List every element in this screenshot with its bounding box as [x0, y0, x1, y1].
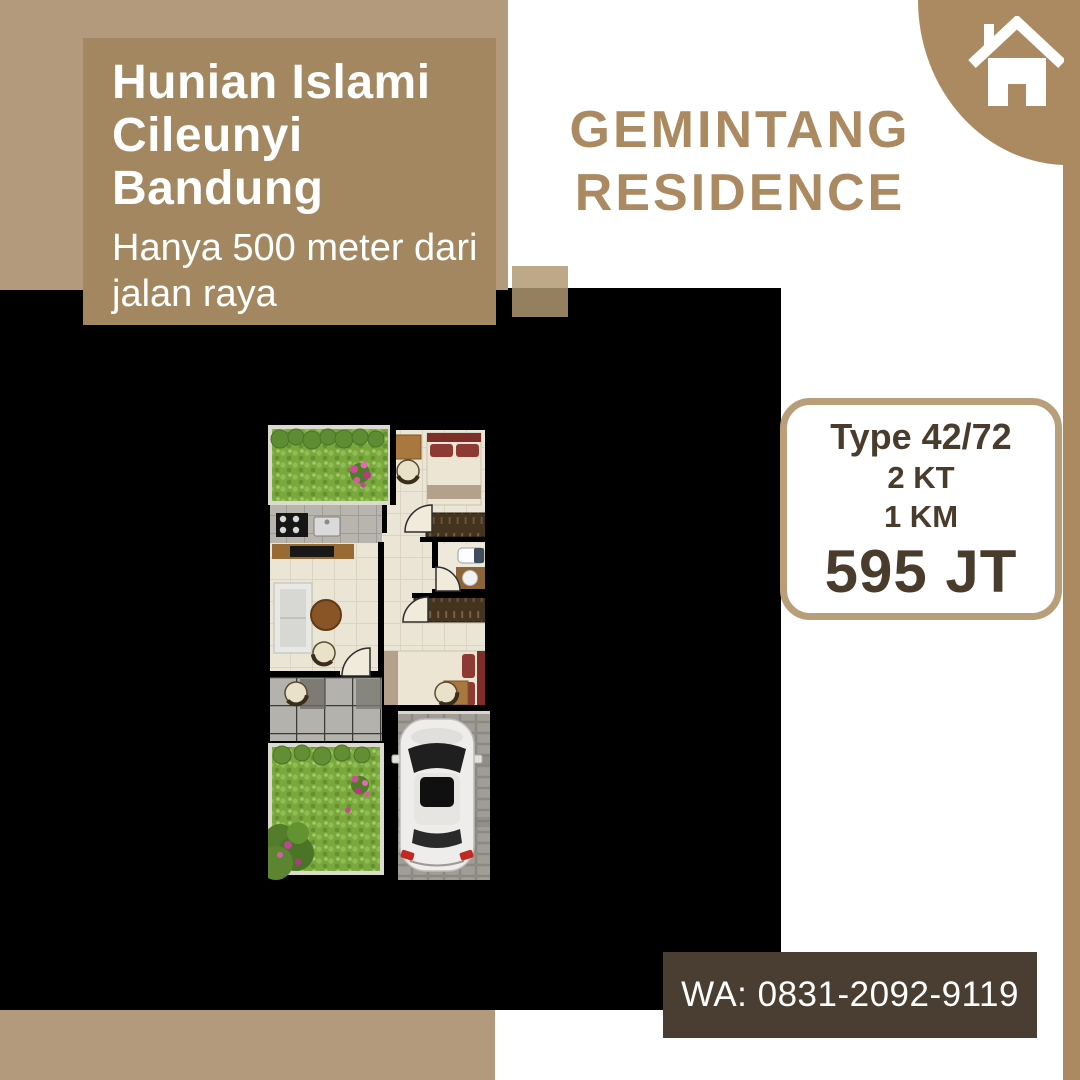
spec-bathrooms: 1 KM: [884, 497, 958, 536]
terrace: [270, 677, 382, 741]
headline-box: Hunian Islami Cileunyi Bandung Hanya 500…: [83, 38, 496, 325]
house-icon: [968, 16, 1064, 108]
car-graphic: [392, 719, 482, 871]
photo-panel: [0, 288, 781, 1010]
poster-canvas: Hunian Islami Cileunyi Bandung Hanya 500…: [0, 0, 1080, 1080]
spec-card: Type 42/72 2 KT 1 KM 595 JT: [780, 398, 1062, 620]
title-line-1: Hunian Islami: [112, 56, 496, 109]
page-title: Hunian Islami Cileunyi Bandung: [112, 56, 496, 215]
brand-line-1: GEMINTANG: [535, 99, 945, 162]
subtitle-line-1: Hanya 500 meter dari: [112, 225, 496, 271]
brand-title: GEMINTANG RESIDENCE: [535, 99, 945, 225]
bottom-bar: [0, 1010, 495, 1080]
front-garden: [268, 745, 382, 880]
whatsapp-cta[interactable]: WA: 0831-2092-9119: [663, 952, 1037, 1038]
backyard-garden: [270, 427, 390, 503]
whatsapp-label: WA: 0831-2092-9119: [681, 975, 1019, 1015]
brand-line-2: RESIDENCE: [535, 162, 945, 225]
spec-type: Type 42/72: [830, 416, 1011, 458]
title-line-3: Bandung: [112, 162, 496, 215]
floorplan-image: [268, 425, 492, 880]
subtitle: Hanya 500 meter dari jalan raya: [112, 225, 496, 317]
accent-square: [512, 266, 568, 317]
subtitle-line-2: jalan raya: [112, 271, 496, 317]
title-line-2: Cileunyi: [112, 109, 496, 162]
spec-bedrooms: 2 KT: [887, 458, 954, 497]
price: 595 JT: [825, 539, 1018, 605]
carport: [392, 711, 490, 880]
